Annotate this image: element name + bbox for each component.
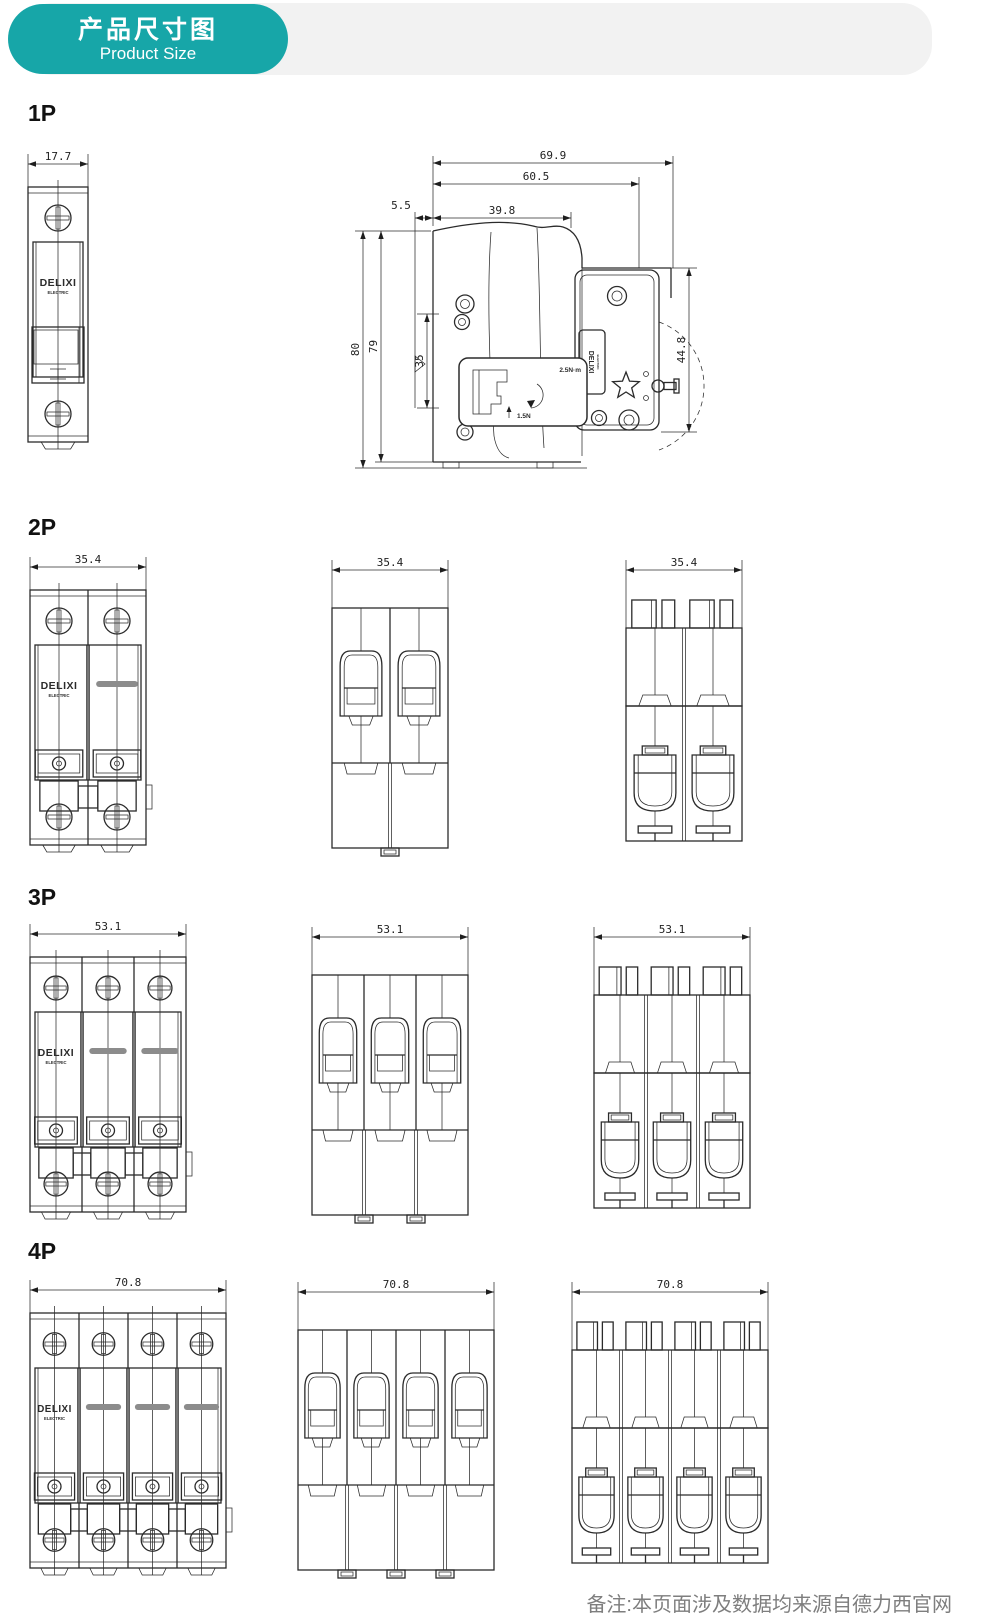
dim-label: 70.8 bbox=[383, 1278, 410, 1291]
d-3p-rear-svg: 53.1 bbox=[580, 915, 764, 1230]
dim-label: 35.4 bbox=[377, 556, 404, 569]
badge-subtitle: Product Size bbox=[8, 44, 288, 64]
inset-label-bottom: 1.5N bbox=[517, 413, 531, 420]
drawing-2p-rear-view: 35.4 bbox=[612, 548, 756, 868]
d-4p-rear-svg: 70.8 bbox=[558, 1270, 782, 1585]
dim-label: 53.1 bbox=[377, 923, 404, 936]
inset-label-top: 2.5N·m bbox=[559, 367, 581, 374]
dim-label: 53.1 bbox=[659, 923, 686, 936]
drawing-1p-side-view: 69.960.539.85.580793544.8DELIXIELECTRIC2… bbox=[341, 146, 709, 499]
drawing-3p-rear-view: 53.1 bbox=[580, 915, 764, 1235]
dim-label: 79 bbox=[367, 340, 380, 353]
drawing-3p-top-view: 53.1 bbox=[298, 915, 482, 1235]
drawing-3p-front-view: 53.1DELIXIELECTRIC bbox=[16, 912, 200, 1232]
brand-logo-sub: ELECTRIC bbox=[44, 1416, 65, 1421]
section-label-4p: 4P bbox=[28, 1238, 56, 1265]
dim-label: 35.4 bbox=[75, 553, 102, 566]
d-1p-front-svg: 17.7DELIXIELECTRIC bbox=[14, 142, 102, 457]
badge-title: 产品尺寸图 bbox=[8, 16, 288, 44]
header-badge: 产品尺寸图 Product Size bbox=[8, 4, 288, 74]
dim-label: 69.9 bbox=[540, 149, 567, 162]
brand-logo-sub: ELECTRIC bbox=[49, 693, 70, 698]
section-label-3p: 3P bbox=[28, 884, 56, 911]
dim-label: 5.5 bbox=[391, 199, 411, 212]
d-4p-top-svg: 70.8 bbox=[284, 1270, 508, 1585]
d-3p-front-svg: 53.1DELIXIELECTRIC bbox=[16, 912, 200, 1227]
dim-label: 44.8 bbox=[675, 337, 688, 364]
drawing-4p-rear-view: 70.8 bbox=[558, 1270, 782, 1590]
dim-label: 17.7 bbox=[45, 150, 72, 163]
dim-label: DELIXI bbox=[41, 680, 78, 692]
brand-logo-sub: ELECTRIC bbox=[48, 290, 69, 295]
d-1p-side-svg: 69.960.539.85.580793544.8DELIXIELECTRIC2… bbox=[341, 146, 709, 494]
dim-label: DELIXI bbox=[37, 1404, 72, 1415]
dim-label: 53.1 bbox=[95, 920, 122, 933]
dim-label: 35.4 bbox=[671, 556, 698, 569]
dim-label: DELIXI bbox=[38, 1048, 74, 1059]
section-label-1p: 1P bbox=[28, 100, 56, 127]
footer-note: 备注:本页面涉及数据均来源自德力西官网 bbox=[586, 1588, 952, 1617]
brand-logo-side: DELIXI bbox=[587, 351, 594, 374]
dim-label: 70.8 bbox=[115, 1276, 142, 1289]
dim-label: 39.8 bbox=[489, 204, 516, 217]
dim-label: 80 bbox=[349, 343, 362, 356]
dim-label: DELIXI bbox=[40, 277, 77, 289]
drawing-2p-top-view: 35.4 bbox=[318, 548, 462, 868]
drawing-1p-front-view: 17.7DELIXIELECTRIC bbox=[14, 142, 102, 462]
d-3p-top-svg: 53.1 bbox=[298, 915, 482, 1230]
d-4p-front-svg: 70.8DELIXIELECTRIC bbox=[16, 1268, 240, 1583]
drawing-2p-front-view: 35.4DELIXIELECTRIC bbox=[16, 545, 160, 865]
product-size-page: 产品尺寸图 Product Size 1P 2P 3P 4P 17.7DELIX… bbox=[0, 0, 990, 1622]
drawing-4p-top-view: 70.8 bbox=[284, 1270, 508, 1590]
brand-logo-side-sub: ELECTRIC bbox=[596, 355, 600, 371]
brand-logo-sub: ELECTRIC bbox=[46, 1060, 67, 1065]
d-2p-top-svg: 35.4 bbox=[318, 548, 462, 863]
d-2p-rear-svg: 35.4 bbox=[612, 548, 756, 863]
section-label-2p: 2P bbox=[28, 514, 56, 541]
dim-label: 70.8 bbox=[657, 1278, 684, 1291]
d-2p-front-svg: 35.4DELIXIELECTRIC bbox=[16, 545, 160, 860]
drawing-4p-front-view: 70.8DELIXIELECTRIC bbox=[16, 1268, 240, 1588]
dim-label: 60.5 bbox=[523, 170, 550, 183]
